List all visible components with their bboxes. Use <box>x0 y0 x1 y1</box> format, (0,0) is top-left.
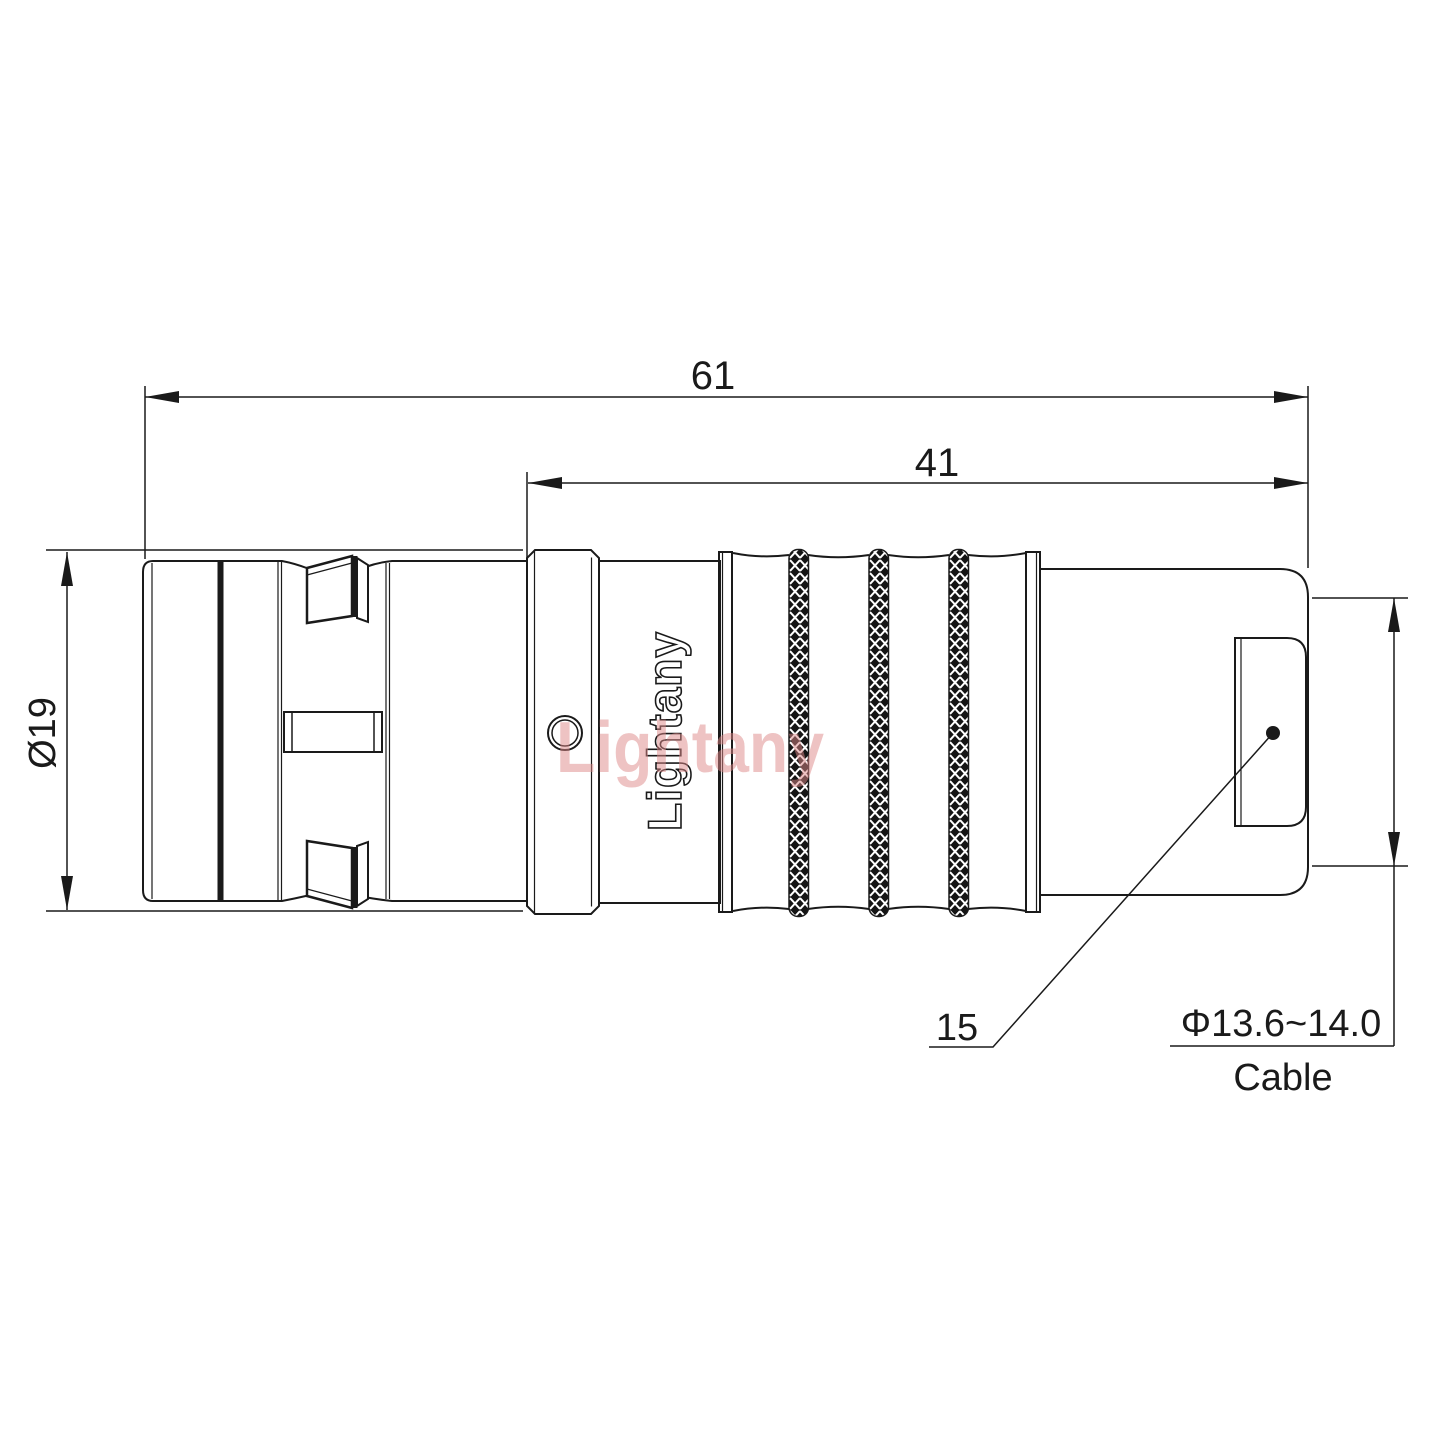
knurl-band-3 <box>949 550 969 917</box>
cable-label: Cable <box>1233 1057 1332 1099</box>
connector-side-view-drawing: Lightany 61 <box>0 0 1440 1440</box>
boot-length-value: 15 <box>936 1007 978 1049</box>
black-groove-band <box>218 561 224 901</box>
latch-side-face <box>357 558 368 622</box>
latch-clip-bottom <box>307 841 368 908</box>
dim-61-value: 61 <box>691 354 736 398</box>
latch-front-face <box>307 556 352 623</box>
latch-clip-top <box>307 556 368 623</box>
dim-19-value: Ø19 <box>22 697 64 769</box>
dim-41-value: 41 <box>915 441 960 485</box>
brand-watermark: Lightany <box>556 708 824 788</box>
cable-spec-value: Φ13.6~14.0 <box>1181 1003 1381 1045</box>
knurl-band-2 <box>869 550 889 917</box>
technical-drawing-canvas: Lightany 61 <box>0 0 1440 1445</box>
